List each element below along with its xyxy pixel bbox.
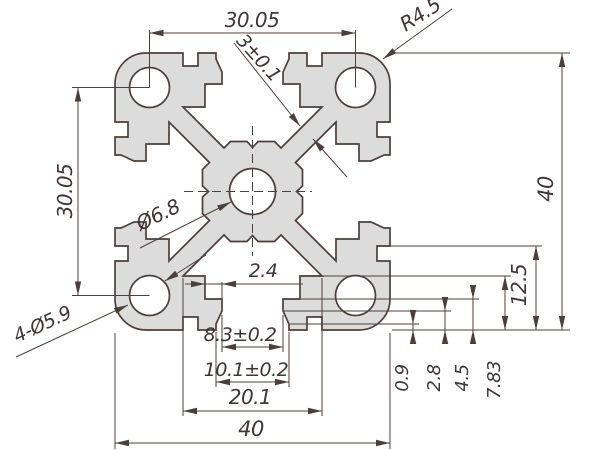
dim-depth-e: 12.5 [507, 246, 536, 330]
dim-depth-c: 4.5 [452, 285, 473, 392]
leader-corner-holes-label: 4-Ø5.9 [10, 302, 75, 348]
dim-overall-width-label: 40 [238, 417, 264, 441]
dim-overall-width: 40 [115, 417, 390, 443]
dim-slot-opening: 8.3±0.2 [204, 324, 283, 347]
dim-top-hole-spacing: 30.05 [150, 8, 356, 33]
dim-slot-opening-label: 8.3±0.2 [204, 324, 277, 346]
dim-cavity-width-label: 20.1 [229, 385, 272, 409]
dim-depth-a: 0.9 [392, 310, 413, 392]
dim-slot-opening-outer: 10.1±0.2 [204, 359, 289, 382]
corner-hole-bottom-right [336, 276, 376, 316]
dim-left-hole-spacing-label: 30.05 [53, 164, 77, 219]
profile-drawing: 30.05 30.05 40 40 20.1 10.1±0.2 8.3±0.2 … [0, 0, 600, 450]
dim-depth-d: 7.83 [484, 276, 505, 399]
dim-web-thickness-label: 3±0.1 [232, 30, 286, 86]
leader-corner-radius-label: R4.5 [395, 0, 445, 36]
dim-depth-d-label: 7.83 [484, 361, 505, 399]
leader-corner-radius: R4.5 [383, 0, 452, 59]
dim-top-hole-spacing-label: 30.05 [225, 8, 280, 32]
dim-slot-opening-outer-label: 10.1±0.2 [204, 359, 288, 381]
dim-depth-a-label: 0.9 [392, 364, 413, 391]
dim-lip-width-label: 2.4 [249, 260, 278, 282]
dim-overall-height: 40 [534, 53, 562, 330]
dim-cavity-width: 20.1 [183, 385, 322, 411]
dim-depth-e-label: 12.5 [507, 264, 531, 307]
dim-overall-height-label: 40 [534, 176, 558, 202]
dim-depth-c-label: 4.5 [452, 364, 473, 391]
dim-left-hole-spacing: 30.05 [53, 88, 78, 296]
dim-depth-b-label: 2.8 [424, 364, 445, 391]
